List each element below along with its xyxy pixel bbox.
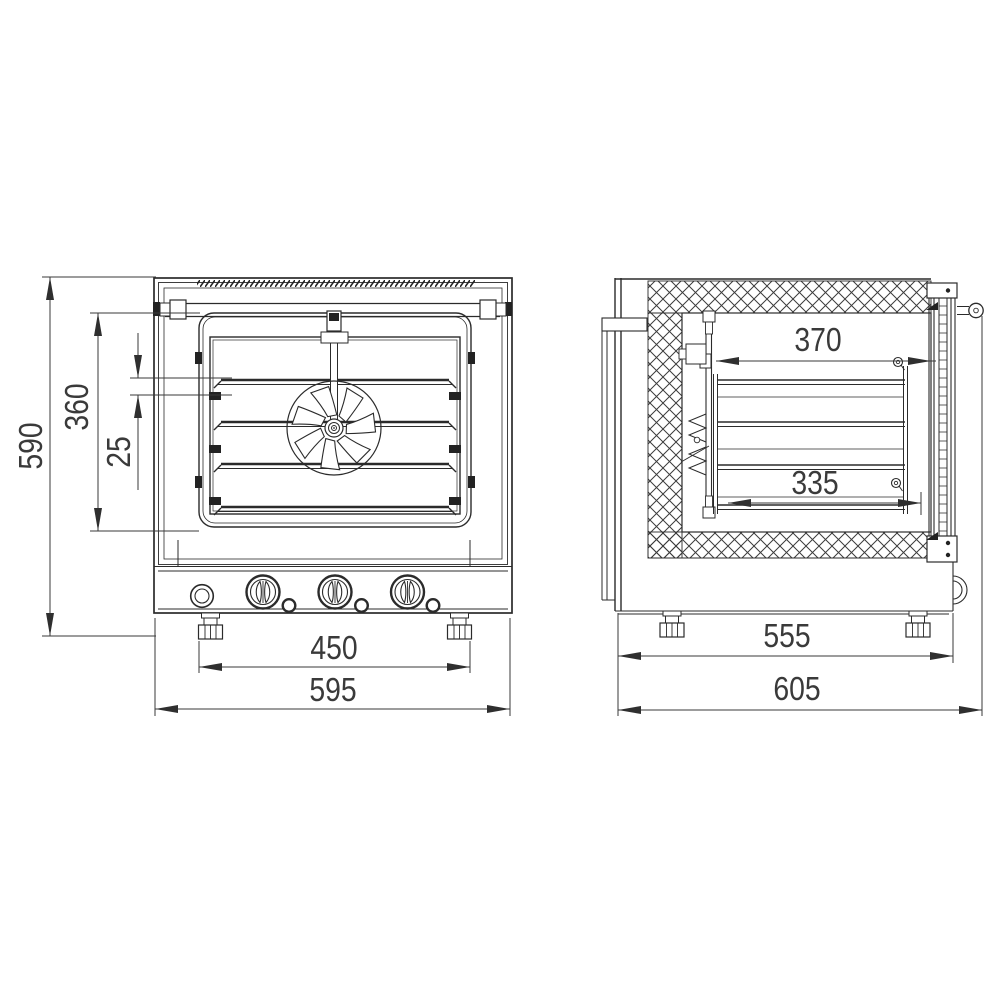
dim-feet-span-label: 450: [298, 631, 370, 665]
control-knob-2[interactable]: [319, 576, 352, 609]
hinge-mark: [195, 352, 202, 364]
power-button[interactable]: [191, 585, 214, 608]
dim-body-depth-label: 555: [751, 619, 823, 653]
indicator-lamp-3: [427, 599, 440, 612]
hinge-mark: [468, 352, 475, 364]
wall-spacer-rail: [602, 318, 647, 600]
door-switch-bump: [953, 576, 967, 604]
control-knob-1[interactable]: [247, 576, 280, 609]
dim-rack-pitch-label: 25: [102, 416, 136, 488]
hinge-mark: [195, 476, 202, 488]
leveling-foot-side-left: [660, 611, 684, 637]
dim-tray-depth-label: 335: [779, 466, 851, 500]
leveling-foot-side-right: [906, 611, 930, 637]
control-knob-3[interactable]: [391, 576, 424, 609]
hinge-mark: [468, 476, 475, 488]
drawing-canvas: [0, 0, 1000, 1000]
oven-door-side: [926, 283, 983, 562]
front-view: [153, 278, 512, 639]
door-handle-side: [957, 303, 983, 317]
door-glass-section: [939, 306, 947, 531]
top-vent-strip: [197, 280, 475, 287]
dim-chamber-height-label: 360: [60, 371, 94, 443]
leveling-foot-front-right: [448, 613, 472, 639]
technical-drawing-page: 590 360 25 450 595 370 335 555 605: [0, 0, 1000, 1000]
leveling-foot-front-left: [199, 613, 223, 639]
dim-overall-depth-label: 605: [761, 672, 833, 706]
dim-overall-width-label: 595: [297, 673, 369, 707]
motor-bracket: [686, 344, 706, 364]
indicator-lamp-1: [283, 599, 296, 612]
dim-chamber-depth-label: 370: [782, 323, 854, 357]
base-plinth: [615, 558, 967, 614]
indicator-lamp-2: [355, 599, 368, 612]
door-top-cap: [927, 283, 957, 298]
dim-overall-height-label: 590: [14, 410, 48, 482]
